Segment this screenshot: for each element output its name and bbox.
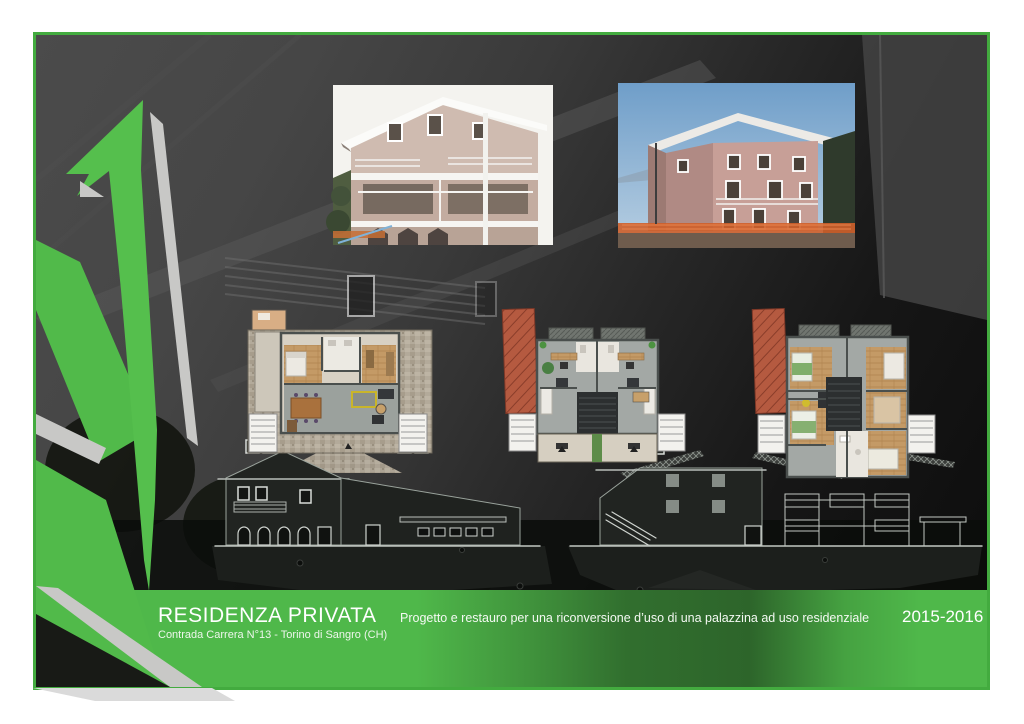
second-floor-plan [752, 308, 935, 477]
project-address: Contrada Carrera N°13 - Torino di Sangro… [158, 629, 387, 641]
first-floor-plan [502, 308, 685, 462]
project-description: Progetto e restauro per una riconversion… [400, 611, 886, 625]
photo-building-front [326, 85, 553, 245]
project-years: 2015-2016 [902, 607, 983, 627]
project-title: RESIDENZA PRIVATA [158, 604, 377, 628]
portfolio-page: RESIDENZA PRIVATA Contrada Carrera N°13 … [0, 0, 1024, 724]
ground-floor-plan [248, 310, 432, 453]
board-frame: RESIDENZA PRIVATA Contrada Carrera N°13 … [33, 32, 990, 690]
footer-band: RESIDENZA PRIVATA Contrada Carrera N°13 … [36, 590, 987, 687]
photo-building-rear [618, 83, 855, 248]
